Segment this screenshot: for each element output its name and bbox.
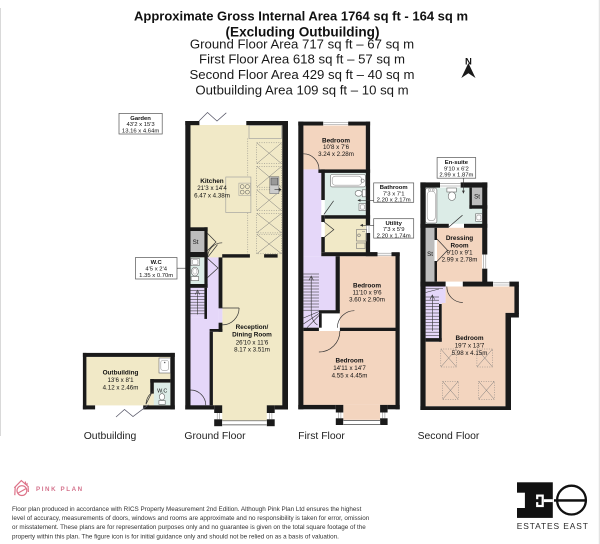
svg-text:PINK PLAN: PINK PLAN [36, 486, 84, 493]
svg-text:1.35 x 0.70m: 1.35 x 0.70m [139, 273, 173, 279]
svg-text:First Floor Area 618 sq ft – 5: First Floor Area 618 sq ft – 57 sq m [199, 52, 405, 67]
svg-text:Outbuilding: Outbuilding [84, 431, 137, 442]
svg-text:St: St [193, 239, 199, 246]
svg-text:13'6 x 8'1: 13'6 x 8'1 [107, 377, 134, 384]
svg-text:9'10 x 6'2: 9'10 x 6'2 [444, 166, 469, 172]
svg-text:level of accuracy, measurement: level of accuracy, measurements of doors… [12, 515, 370, 522]
svg-text:or misstatement. These plans a: or misstatement. These plans are for rep… [12, 524, 366, 531]
svg-text:Bedroom: Bedroom [335, 358, 363, 365]
svg-text:2.20 x 1.74m: 2.20 x 1.74m [377, 233, 411, 239]
svg-text:2.99 x 2.78m: 2.99 x 2.78m [442, 256, 478, 263]
svg-text:Outbuilding Area 109 sq ft – 1: Outbuilding Area 109 sq ft – 10 sq m [195, 83, 408, 98]
svg-text:Bathroom: Bathroom [380, 185, 408, 191]
svg-text:W.C: W.C [151, 260, 163, 266]
svg-text:4.55 x 4.45m: 4.55 x 4.45m [332, 373, 368, 380]
svg-text:Kitchen: Kitchen [200, 178, 224, 185]
svg-text:St: St [427, 251, 433, 258]
svg-text:Ground Floor: Ground Floor [184, 431, 246, 442]
svg-text:4'5 x 2'4: 4'5 x 2'4 [145, 266, 167, 272]
svg-text:Utility: Utility [386, 221, 403, 227]
svg-text:7'3 x 5'9: 7'3 x 5'9 [383, 227, 405, 233]
svg-text:Room: Room [450, 242, 468, 249]
svg-text:43'2 x 15'3: 43'2 x 15'3 [127, 122, 156, 128]
svg-text:En-suite: En-suite [445, 160, 469, 166]
svg-text:5.98 x 4.15m: 5.98 x 4.15m [452, 350, 488, 357]
svg-text:14'11 x 14'7: 14'11 x 14'7 [333, 365, 366, 372]
svg-text:Outbuilding: Outbuilding [103, 370, 139, 377]
svg-text:ESTATES EAST: ESTATES EAST [517, 521, 589, 531]
svg-text:Second Floor: Second Floor [418, 431, 480, 442]
svg-text:3.24 x 2.28m: 3.24 x 2.28m [318, 151, 354, 158]
svg-text:St: St [474, 194, 480, 201]
svg-text:7'3 x 7'1: 7'3 x 7'1 [383, 191, 405, 197]
svg-text:19'7 x 13'7: 19'7 x 13'7 [455, 343, 485, 350]
svg-text:Ground Floor Area 717 sq ft –: Ground Floor Area 717 sq ft – 67 sq m [190, 36, 414, 51]
svg-text:Bedroom: Bedroom [455, 335, 483, 342]
svg-text:13.16 x 4.64m: 13.16 x 4.64m [122, 129, 159, 135]
svg-text:4.12 x 2.46m: 4.12 x 2.46m [103, 384, 139, 391]
svg-text:6.47 x 4.38m: 6.47 x 4.38m [194, 193, 230, 200]
svg-text:First Floor: First Floor [298, 431, 345, 442]
svg-text:Garden: Garden [130, 116, 151, 122]
svg-text:Dressing: Dressing [446, 235, 473, 242]
svg-text:property within this plan. The: property within this plan. The figure ic… [12, 533, 339, 540]
svg-text:8.17 x 3.51m: 8.17 x 3.51m [234, 347, 270, 354]
svg-text:2.20 x 2.17m: 2.20 x 2.17m [377, 198, 411, 204]
svg-text:Approximate Gross Internal Are: Approximate Gross Internal Area 1764 sq … [134, 9, 468, 24]
svg-text:Second Floor Area 429 sq ft –: Second Floor Area 429 sq ft – 40 sq m [189, 67, 414, 82]
svg-text:10'8 x 7'6: 10'8 x 7'6 [323, 144, 350, 151]
svg-text:2.99 x 1.87m: 2.99 x 1.87m [439, 173, 473, 179]
svg-text:Dining Room: Dining Room [232, 332, 272, 339]
svg-text:21'3 x 14'4: 21'3 x 14'4 [197, 185, 227, 192]
svg-text:Floor plan produced in accorda: Floor plan produced in accordance with R… [12, 506, 362, 513]
svg-text:3.60 x 2.90m: 3.60 x 2.90m [349, 296, 385, 303]
svg-text:26'10 x 11'6: 26'10 x 11'6 [236, 339, 269, 346]
svg-text:Reception/: Reception/ [236, 324, 269, 331]
